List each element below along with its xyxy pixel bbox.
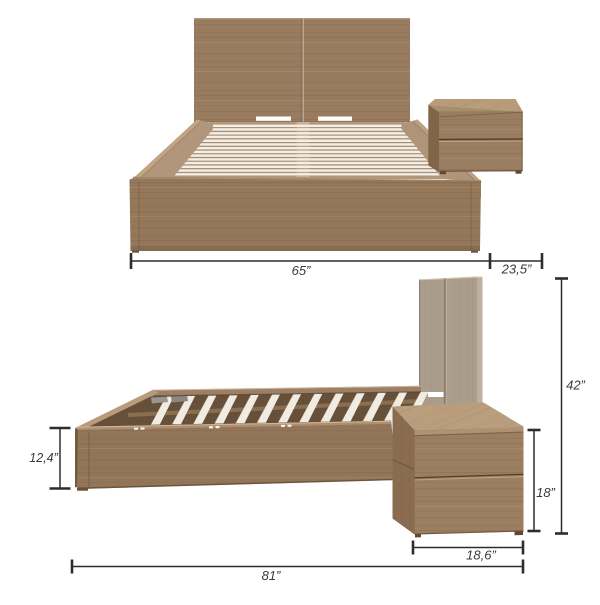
svg-text:42”: 42” — [566, 378, 585, 393]
svg-text:18”: 18” — [536, 485, 555, 500]
svg-text:81”: 81” — [262, 568, 281, 583]
svg-text:23,5”: 23,5” — [501, 262, 532, 277]
svg-text:65”: 65” — [292, 263, 311, 278]
svg-text:18,6”: 18,6” — [466, 548, 496, 563]
svg-text:12,4”: 12,4” — [29, 451, 58, 465]
